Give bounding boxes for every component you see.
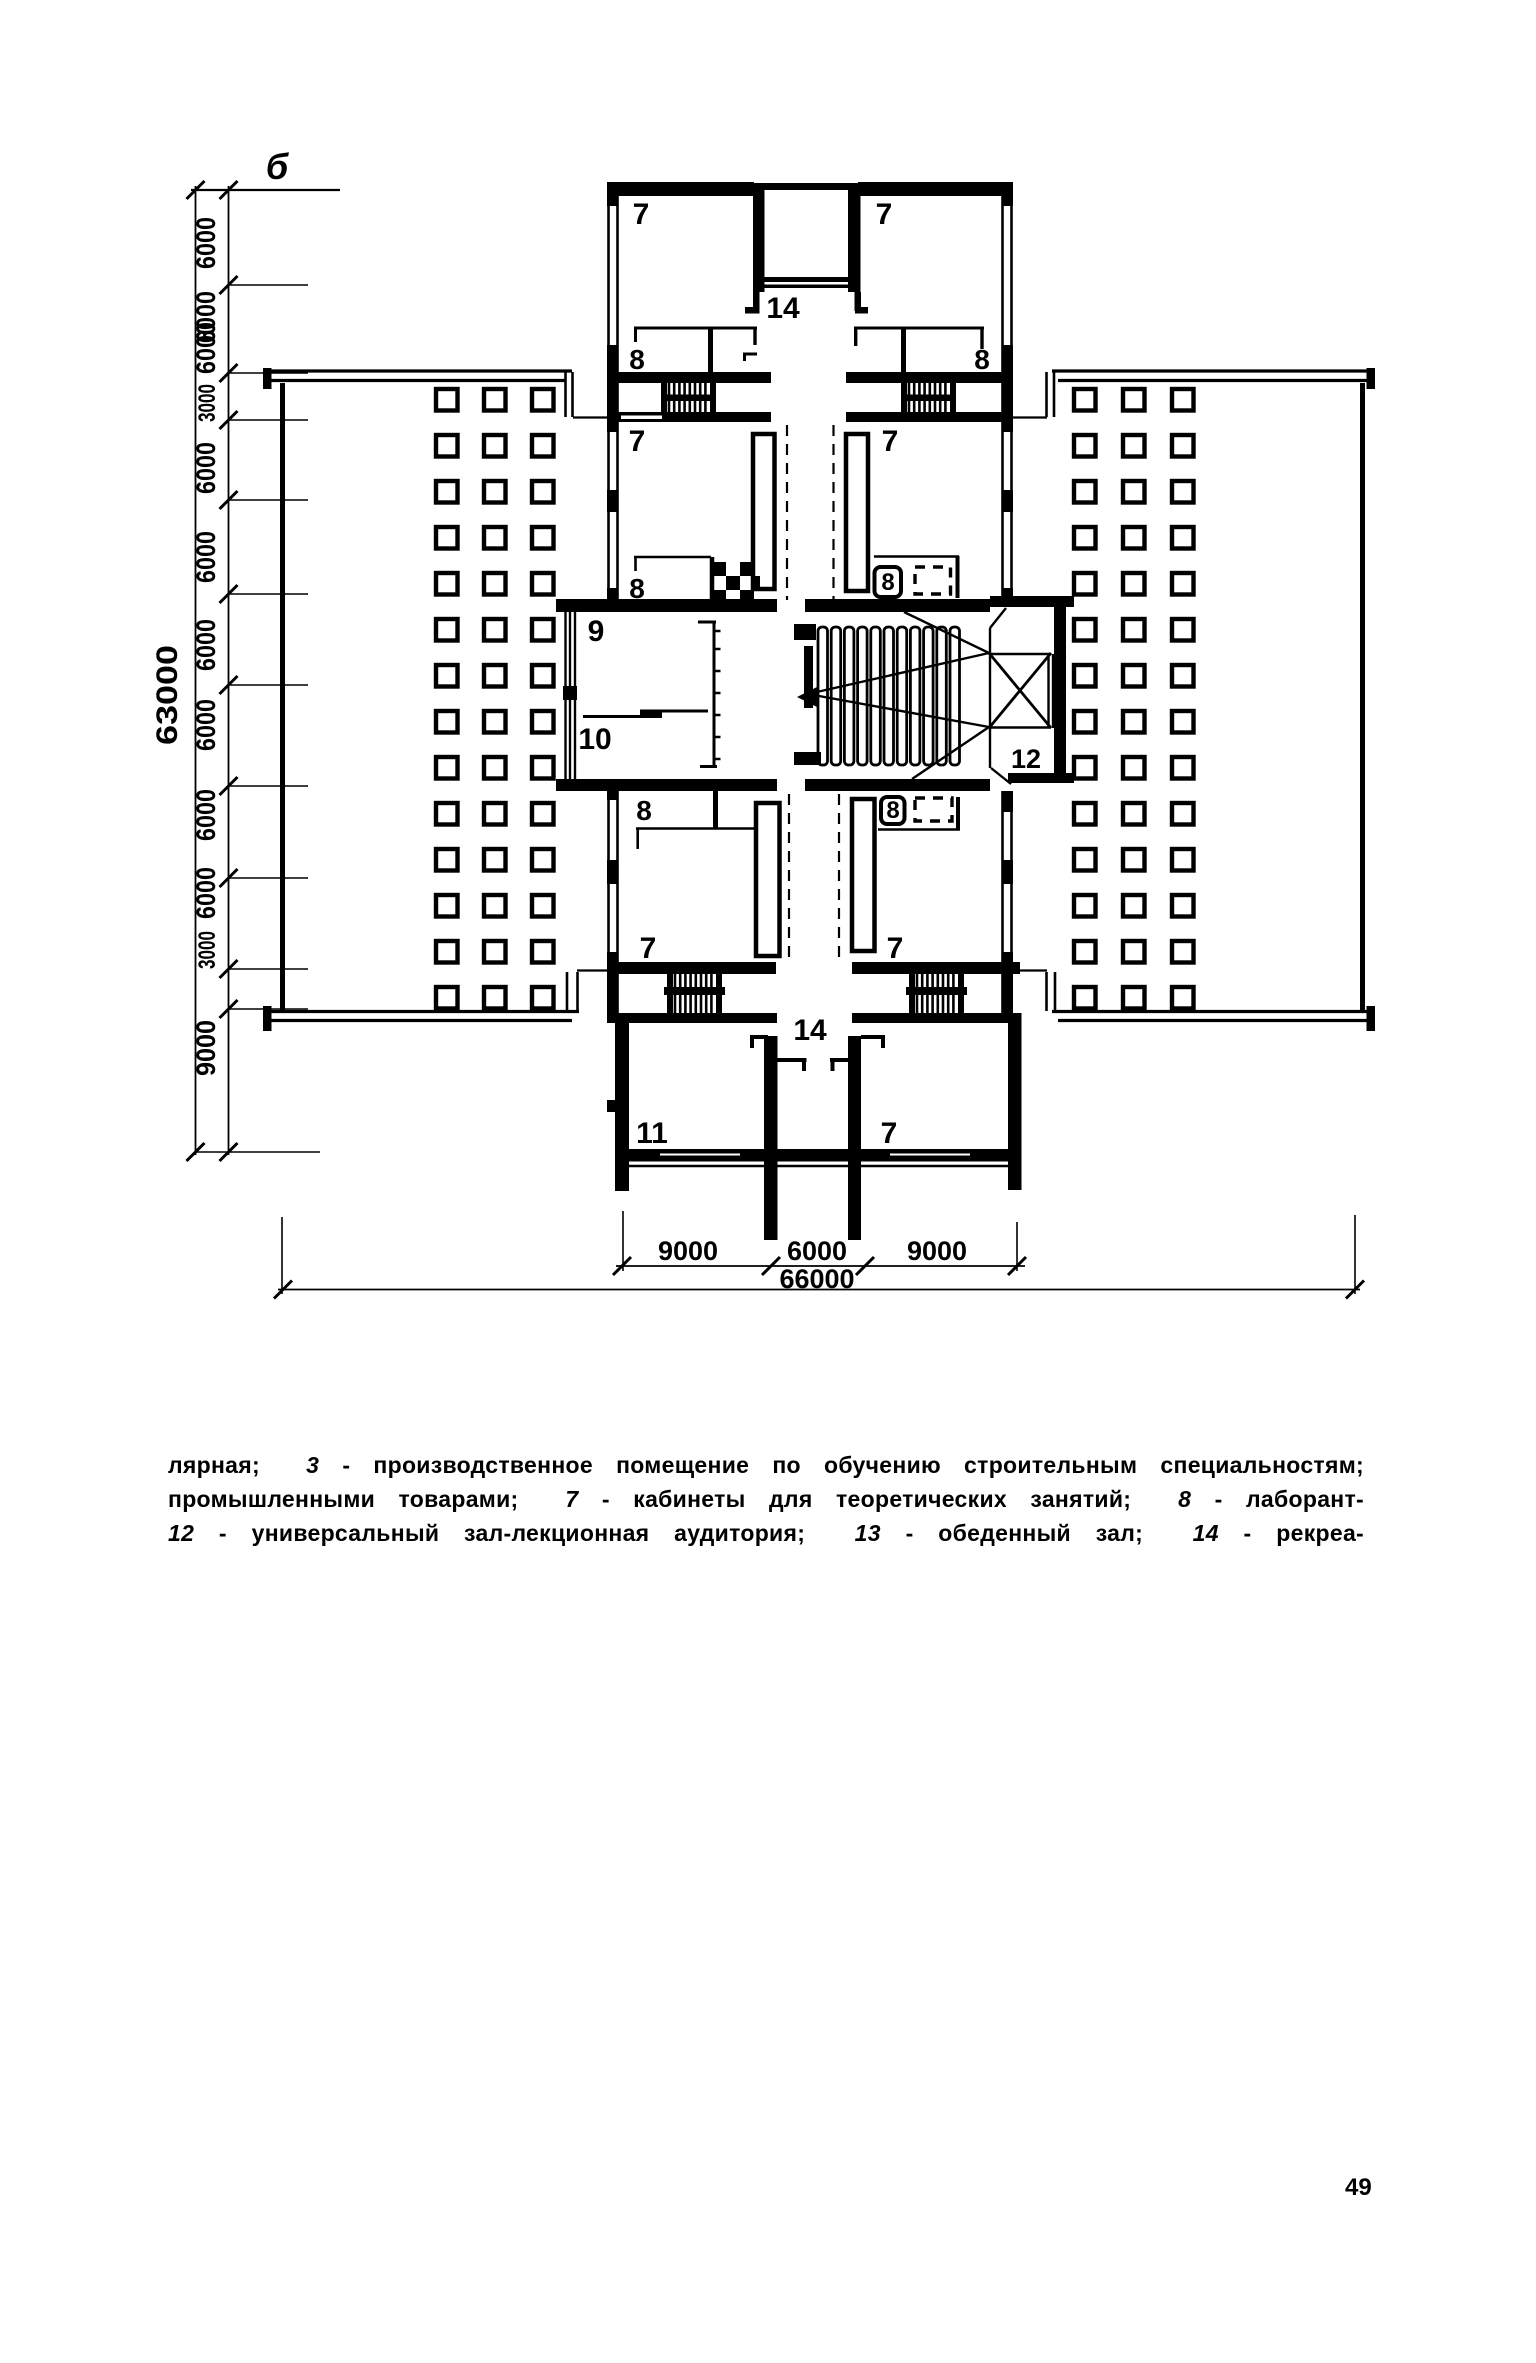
svg-text:6000: 6000 <box>191 699 221 751</box>
svg-text:6000: 6000 <box>787 1236 847 1266</box>
svg-text:7: 7 <box>882 425 899 458</box>
svg-text:6000: 6000 <box>191 789 221 841</box>
svg-text:10: 10 <box>578 723 611 756</box>
svg-text:9000: 9000 <box>907 1236 967 1266</box>
svg-text:7: 7 <box>633 198 650 231</box>
svg-text:7: 7 <box>640 932 657 965</box>
svg-text:7: 7 <box>887 932 904 965</box>
svg-text:7: 7 <box>629 425 646 458</box>
svg-text:63000: 63000 <box>151 645 184 745</box>
svg-text:3000: 3000 <box>194 384 221 422</box>
svg-text:3000: 3000 <box>194 931 221 969</box>
svg-text:6000: 6000 <box>191 531 221 583</box>
svg-text:6000: 6000 <box>191 442 221 494</box>
svg-text:11: 11 <box>636 1117 668 1150</box>
svg-text:14: 14 <box>793 1014 827 1047</box>
svg-text:8: 8 <box>886 797 899 824</box>
svg-text:9000: 9000 <box>191 1020 221 1076</box>
svg-text:6000: 6000 <box>191 619 221 671</box>
svg-text:12: 12 <box>1011 744 1041 774</box>
svg-text:6000: 6000 <box>191 867 221 919</box>
svg-text:8: 8 <box>881 569 894 596</box>
svg-text:8: 8 <box>629 344 645 375</box>
svg-text:8: 8 <box>636 795 652 826</box>
svg-text:б: б <box>266 146 290 187</box>
svg-text:14: 14 <box>766 292 800 325</box>
svg-text:7: 7 <box>881 1117 898 1150</box>
svg-text:8: 8 <box>974 344 990 375</box>
svg-text:6000: 6000 <box>191 322 221 374</box>
svg-text:6000: 6000 <box>191 217 221 269</box>
svg-text:9: 9 <box>588 615 605 648</box>
svg-text:9000: 9000 <box>658 1236 718 1266</box>
svg-text:7: 7 <box>876 198 893 231</box>
